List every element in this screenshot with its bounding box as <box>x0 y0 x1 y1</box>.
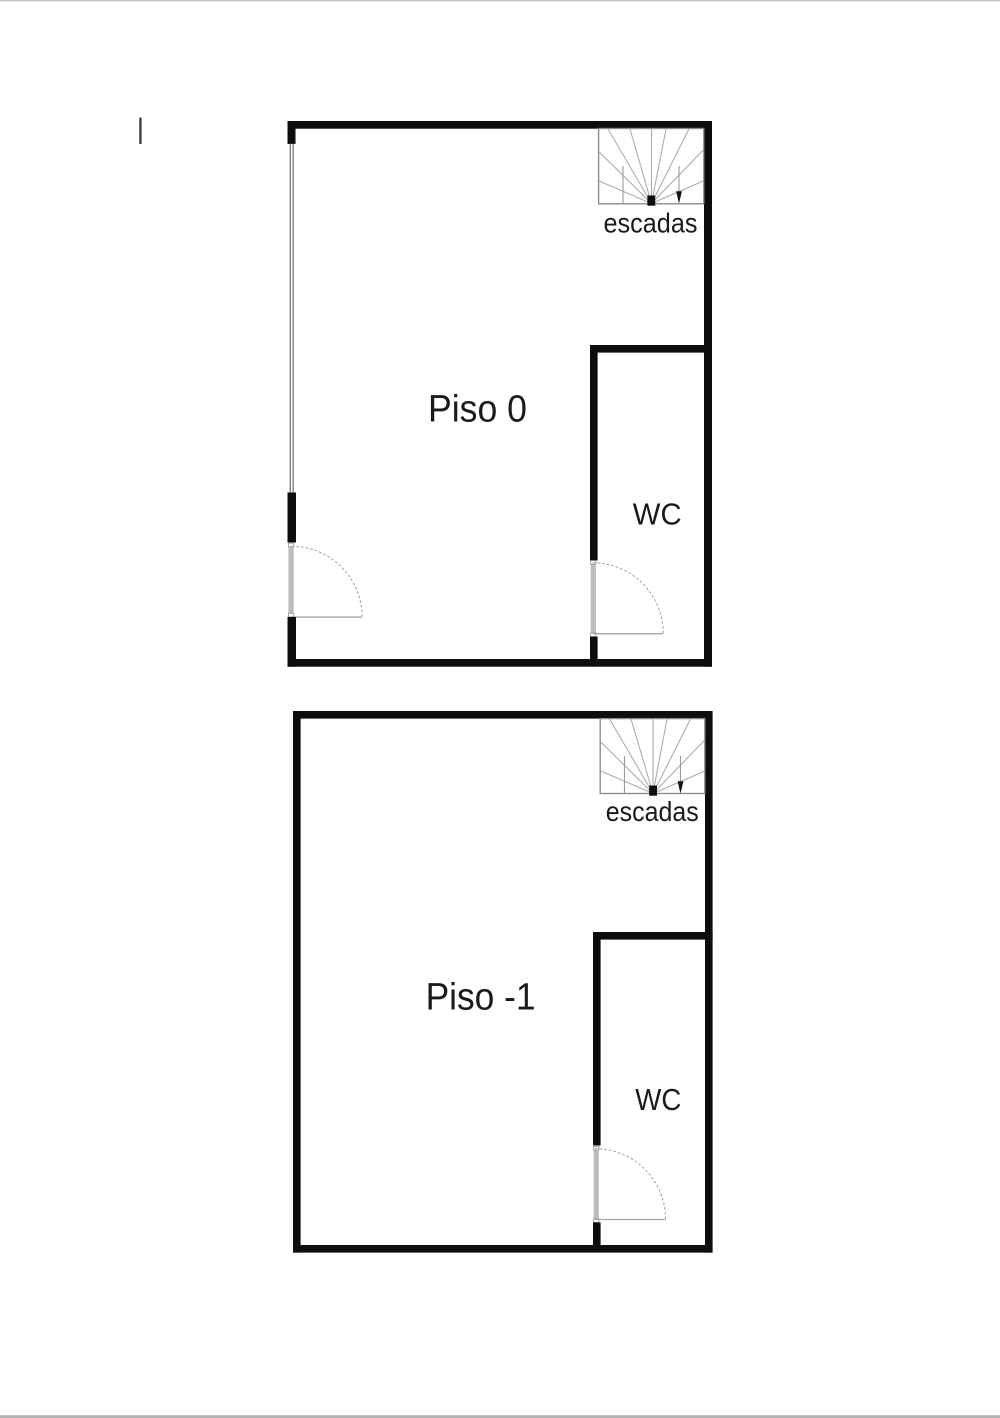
svg-text:WC: WC <box>633 497 682 532</box>
svg-text:Piso -1: Piso -1 <box>426 977 536 1019</box>
svg-text:escadas: escadas <box>606 796 699 827</box>
svg-text:WC: WC <box>635 1082 681 1117</box>
svg-text:escadas: escadas <box>604 207 698 238</box>
svg-text:Piso 0: Piso 0 <box>428 388 527 430</box>
